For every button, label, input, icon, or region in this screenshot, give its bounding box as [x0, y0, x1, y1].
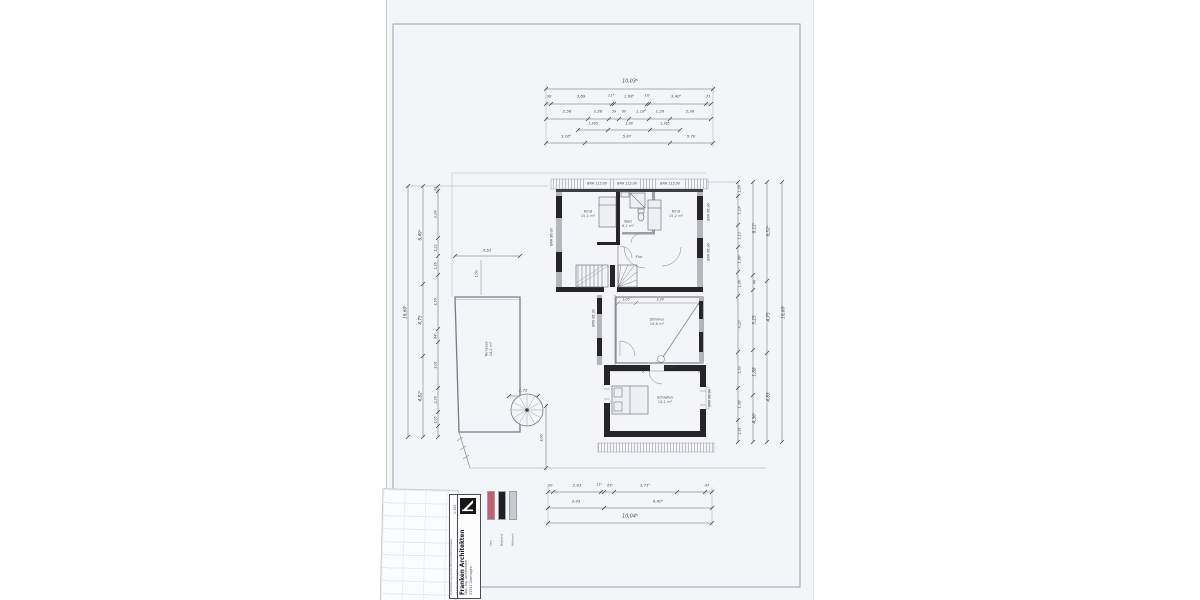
dim-label: 3,70	[687, 135, 696, 139]
dim-label: 1,13⁵	[738, 206, 742, 215]
dim-label: 3,40⁵	[671, 95, 681, 99]
terrace	[455, 297, 766, 468]
dim-label: 3,59	[434, 298, 438, 305]
dim-label: 3,10⁵	[434, 210, 438, 219]
dim-label: 47	[705, 484, 710, 488]
legend-swatch-demolition	[509, 491, 517, 520]
dim-label: 30	[434, 187, 438, 191]
firm-subline: 41542 Dormagen	[469, 553, 473, 595]
dim-label: 1,22	[434, 244, 438, 251]
room-area: 15,2 m²	[669, 214, 684, 218]
window-sill-label: BRH 86.00	[550, 228, 554, 246]
dim-label: 1,73	[519, 389, 528, 393]
dim-label: 1,91	[738, 427, 742, 434]
firm-subline: Dipl.-Ing. Architekten	[464, 553, 468, 595]
dim-label: 6,12⁵	[753, 222, 758, 233]
room-label: Bad 6,1 m²	[622, 220, 634, 229]
room-name: Flur	[635, 255, 642, 259]
dim-label: 40	[753, 280, 757, 284]
dim-label: 3,43	[572, 500, 581, 504]
dim-label: 1,26	[594, 110, 603, 114]
dim-label: 3,69	[577, 95, 586, 99]
dim-label: 84⁵	[434, 333, 438, 339]
dim-label: 1,26	[656, 110, 665, 114]
dim-label: 1,05	[434, 416, 438, 423]
dim-label: 6,52⁵	[767, 225, 772, 236]
window-sill-label: BRH 86.00	[592, 309, 596, 327]
room-label: Schlafen 14,1 m²	[657, 396, 673, 405]
dim-label: 2,26	[434, 396, 438, 403]
dim-label: 1,26	[738, 185, 742, 192]
room-label: Kind 15,2 m²	[669, 210, 684, 219]
dim-label: 1,96⁵	[738, 255, 742, 264]
dim-label: 11⁵	[596, 483, 602, 487]
dim-label: 1,18⁵	[636, 110, 646, 114]
dim-label: 1,93	[738, 366, 742, 373]
dim-label: 1,05	[622, 298, 629, 302]
window-sill-label: BRH 115.00	[587, 182, 607, 186]
dim-label: 4,82⁵	[419, 390, 424, 401]
dim-label: 2,93	[573, 484, 582, 488]
dim-label: 2,81	[666, 366, 675, 370]
door-swings	[620, 234, 681, 384]
dim-label: 3,71⁵	[640, 484, 650, 488]
window-sill-label: BRH 86.00	[707, 243, 711, 261]
legend-swatch-new	[487, 491, 495, 520]
dim-label: 30	[547, 95, 552, 99]
underlying-sheet	[380, 488, 459, 600]
dim-label: 1,13	[738, 232, 742, 239]
room-area: 14,6 m²	[650, 322, 665, 326]
room-label: Zimmer 14,6 m²	[650, 318, 665, 327]
project-line: Aufstockung eines Einfamilienhauses	[450, 547, 453, 596]
architect-logo-icon	[460, 498, 476, 514]
room-area: 14,1 m²	[657, 400, 673, 404]
project-line: 41542 Dormagen	[456, 547, 459, 596]
dim-label: 59	[612, 110, 616, 114]
window-sill-label: BRH 115.00	[660, 182, 680, 186]
room-area: 6,1 m²	[622, 224, 634, 228]
dim-label: 4,22⁵	[738, 320, 742, 329]
dim-label: 4,83	[767, 392, 772, 401]
witness-lines	[408, 85, 738, 526]
dim-label: 11⁵	[608, 94, 615, 98]
drawing-scale: 1:100	[453, 505, 456, 514]
room-area: 24,1 m²	[489, 341, 493, 356]
window-sill-label: BRH 115.00	[617, 182, 637, 186]
room-label: Kind 15,1 m²	[581, 210, 596, 219]
dim-label: 60	[622, 110, 626, 114]
title-block-firm: Franken Architekten Dipl.-Ing. Architekt…	[459, 519, 478, 595]
dim-label: 20	[548, 484, 553, 488]
dim-total-left: 16,60⁵	[404, 305, 409, 319]
dim-total-top: 10,03⁵	[622, 79, 638, 85]
dimension-lines	[408, 89, 782, 523]
plan-linework	[0, 0, 1200, 600]
dim-label: 3,16⁵	[561, 135, 571, 139]
dim-label: 31	[706, 95, 711, 99]
terrace-label: Terrasse 24,1 m²	[485, 341, 494, 356]
middle-section	[597, 295, 703, 365]
dim-label: 6,49⁵	[419, 229, 424, 240]
window-sill-label: BRH 86.00	[707, 203, 711, 221]
dim-label: 1,38	[625, 122, 632, 126]
dim-label: 1,26	[434, 262, 438, 269]
stairs	[576, 265, 637, 287]
room-label: Flur	[635, 255, 642, 259]
dim-label: 5,25	[753, 315, 758, 324]
dim-label: 2,38	[686, 110, 695, 114]
dim-label: 3,00	[540, 434, 544, 441]
dim-label: 3,01	[434, 361, 438, 368]
legend-label: Bestand	[500, 534, 504, 546]
dim-label: 5,87	[623, 135, 632, 139]
existing-room	[598, 365, 714, 452]
dim-label: 2,56	[563, 110, 572, 114]
dim-total-right: 16,60⁵	[782, 305, 787, 319]
dimension-ticks	[406, 87, 784, 525]
dim-label: 3,34	[656, 298, 663, 302]
dim-label: 4,75	[767, 312, 772, 321]
room-area: 15,1 m²	[581, 214, 596, 218]
dim-label: 1,00	[475, 270, 479, 277]
dim-label: 1,26	[738, 280, 742, 287]
dim-label: 1,385	[588, 122, 597, 126]
dim-label: 1,38⁵	[738, 400, 742, 409]
dim-label: 63⁵	[607, 484, 613, 488]
dim-label: 4,75	[419, 315, 424, 324]
dim-total-bottom: 10,04⁵	[622, 514, 638, 520]
dim-label: 3,51	[483, 249, 492, 253]
legend-swatch-existing	[498, 491, 506, 520]
dim-label: 6,60⁵	[653, 500, 663, 504]
dim-label: 10	[645, 94, 650, 98]
legend-label: neu	[489, 540, 493, 546]
window-sill-label: BRH 86.00	[708, 389, 712, 407]
dim-label: 1,99⁵	[624, 95, 634, 99]
dim-label: 1,385	[660, 122, 669, 126]
dim-label: 4,36⁵	[753, 412, 758, 423]
dim-label: 1,88	[753, 367, 758, 376]
scanned-floor-plan: 10,03⁵ 30 3,69 11⁵ 1,99⁵ 10 3,40⁵ 31 2,5…	[0, 0, 1200, 600]
legend-label: Abbruch	[511, 533, 515, 546]
